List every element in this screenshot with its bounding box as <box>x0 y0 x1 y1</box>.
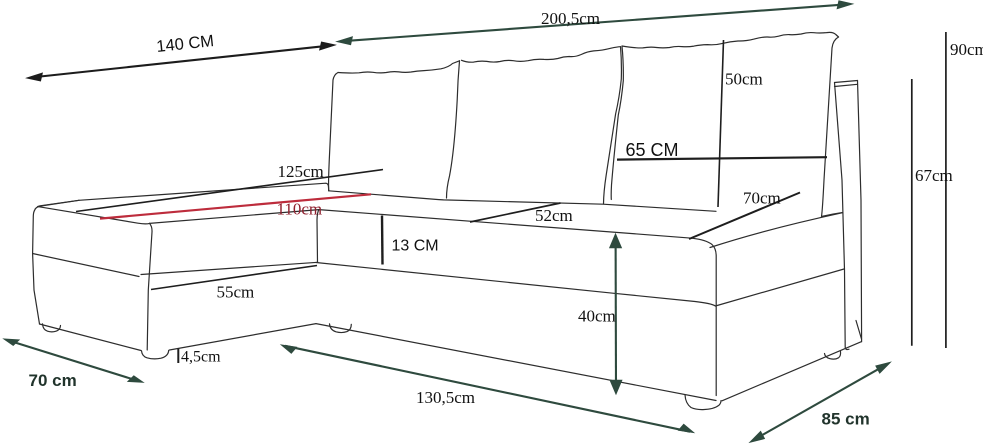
svg-text:85 cm: 85 cm <box>822 410 870 429</box>
svg-text:50cm: 50cm <box>725 70 763 89</box>
svg-text:52cm: 52cm <box>535 206 573 225</box>
svg-text:40cm: 40cm <box>578 307 616 326</box>
svg-text:90cm: 90cm <box>950 40 983 59</box>
svg-text:65 CM: 65 CM <box>626 140 679 160</box>
svg-text:130,5cm: 130,5cm <box>416 388 475 407</box>
svg-text:13 CM: 13 CM <box>392 238 439 255</box>
svg-text:67cm: 67cm <box>915 166 953 185</box>
svg-text:110cm: 110cm <box>277 200 323 219</box>
svg-text:125cm: 125cm <box>278 162 324 181</box>
svg-text:200,5cm: 200,5cm <box>541 9 600 28</box>
svg-text:55cm: 55cm <box>217 283 255 302</box>
svg-text:4,5cm: 4,5cm <box>181 349 221 366</box>
svg-text:70cm: 70cm <box>743 189 781 208</box>
svg-text:70 cm: 70 cm <box>29 371 77 390</box>
